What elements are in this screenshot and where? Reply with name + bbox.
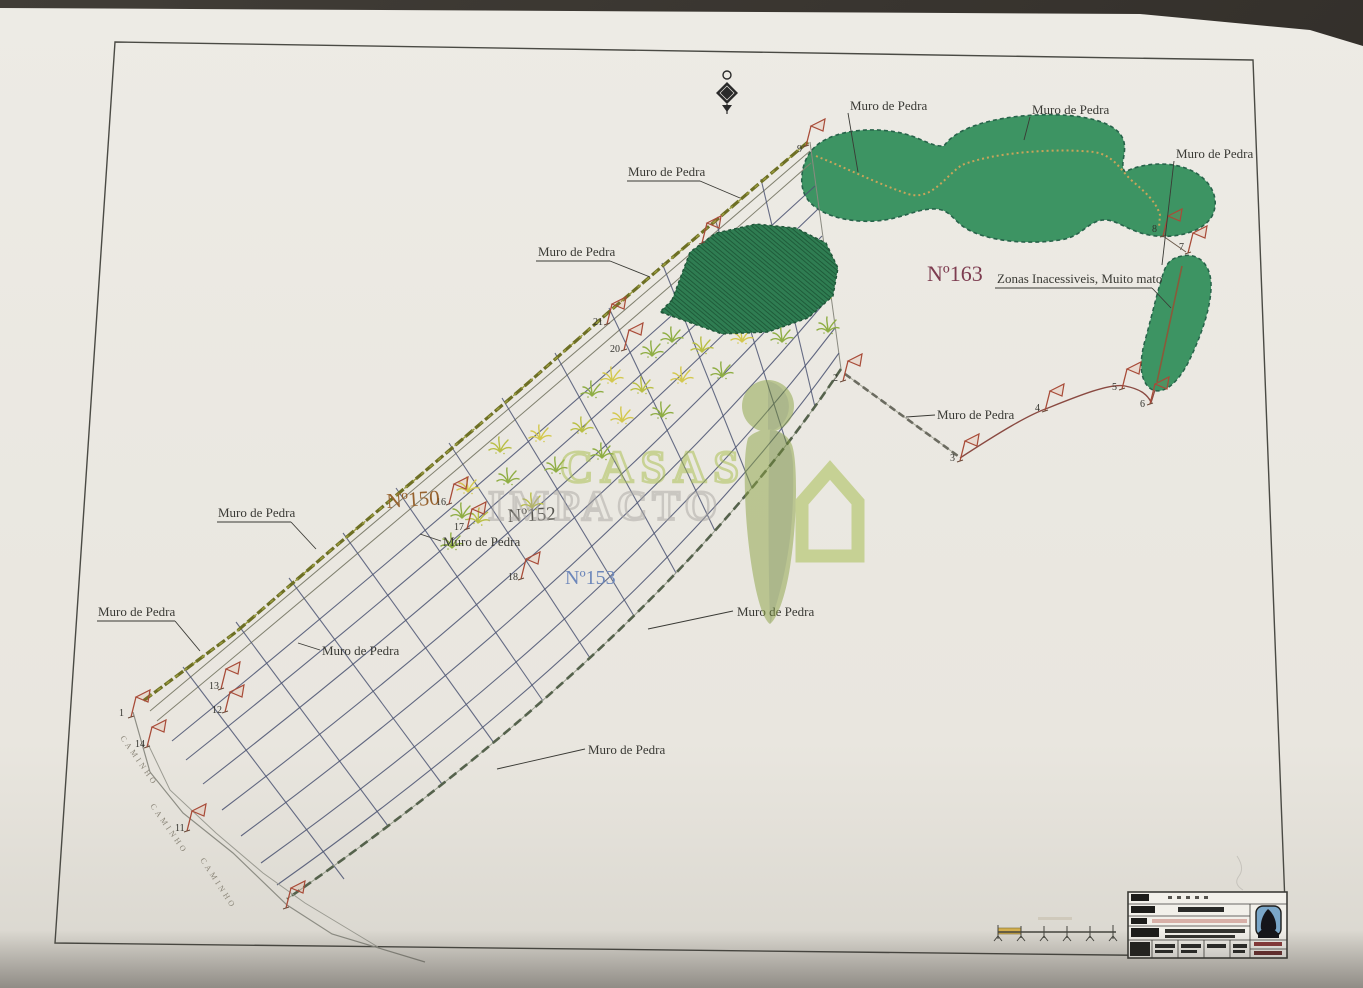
flag-number: 13 — [209, 681, 219, 692]
muro-de-pedra-label: Muro de Pedra — [628, 164, 705, 179]
muro-de-pedra-label: Muro de Pedra — [218, 505, 295, 520]
muro-de-pedra-label: Muro de Pedra — [850, 98, 927, 113]
flag-number: 7 — [1179, 242, 1184, 253]
photo-shadow — [0, 930, 1363, 988]
flag-number: 20 — [610, 344, 620, 355]
muro-de-pedra-label: Muro de Pedra — [322, 643, 399, 658]
survey-map-photo: 9 8 7 6 5 4 3 2 21 20 16 17 18 13 12 1 1… — [0, 0, 1363, 988]
flag-number: 1 — [119, 708, 124, 719]
zonas-inacessiveis-label: Zonas Inacessiveis, Muito mato — [997, 271, 1162, 286]
flag-number: 17 — [454, 522, 464, 533]
watermark-impacto: IMPACTO — [488, 484, 722, 530]
parcel-number-153: Nº153 — [565, 567, 616, 589]
muro-de-pedra-label: Muro de Pedra — [443, 534, 520, 549]
flag-number: 5 — [1112, 382, 1117, 393]
muro-de-pedra-label: Muro de Pedra — [538, 244, 615, 259]
flag-number: 8 — [1152, 224, 1157, 235]
flag-number: 21 — [593, 317, 603, 328]
muro-de-pedra-label: Muro de Pedra — [937, 407, 1014, 422]
flag-number: 18 — [508, 572, 518, 583]
flag-number: 12 — [212, 705, 222, 716]
flag-number: 3 — [950, 453, 955, 464]
parcel-number-150: Nº150 — [386, 485, 441, 513]
muro-de-pedra-label: Muro de Pedra — [588, 742, 665, 757]
muro-de-pedra-label: Muro de Pedra — [1032, 102, 1109, 117]
muro-de-pedra-label: Muro de Pedra — [98, 604, 175, 619]
muro-de-pedra-label: Muro de Pedra — [1176, 146, 1253, 161]
flag-number: 6 — [1140, 399, 1145, 410]
flag-number: 4 — [1035, 403, 1040, 414]
flag-number: 9 — [797, 144, 802, 155]
parcel-number-163: Nº163 — [927, 261, 983, 286]
flag-number: 2 — [833, 373, 838, 384]
photo-background: 9 8 7 6 5 4 3 2 21 20 16 17 18 13 12 1 1… — [0, 0, 1363, 988]
